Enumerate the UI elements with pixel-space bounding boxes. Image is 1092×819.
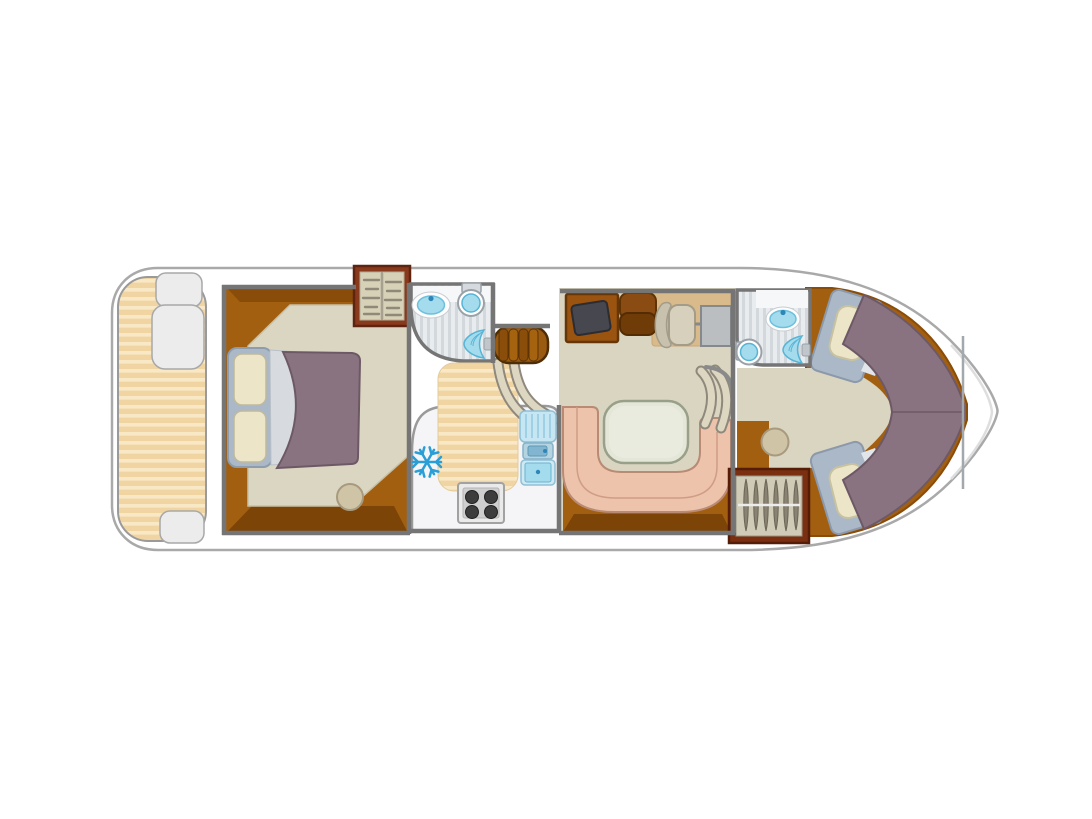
washbasin <box>412 292 450 318</box>
master-cabin <box>224 266 410 534</box>
pillow <box>234 411 266 462</box>
forward-bathroom <box>736 290 810 365</box>
forward-wardrobe <box>729 469 809 543</box>
boarding-step <box>152 305 204 369</box>
stool <box>337 484 363 510</box>
master-wardrobe <box>354 266 410 326</box>
helm-console <box>701 306 731 346</box>
washbasin <box>766 307 800 331</box>
saloon <box>559 288 735 534</box>
boarding-step <box>160 511 204 543</box>
floorplan-canvas <box>0 0 1092 819</box>
galley-sink <box>520 411 556 485</box>
bench-seat <box>620 313 656 335</box>
chart-screen <box>571 300 611 335</box>
toilet <box>458 283 484 316</box>
boarding-step <box>156 273 202 307</box>
boat-floorplan <box>0 0 1092 819</box>
stool <box>762 429 789 456</box>
pillow <box>234 354 266 405</box>
stove <box>458 483 504 523</box>
double-bed <box>228 348 360 468</box>
helm-seat <box>669 305 695 345</box>
companionway-stairs <box>494 327 548 363</box>
aft-sun-deck <box>118 273 206 543</box>
toilet <box>736 340 762 365</box>
